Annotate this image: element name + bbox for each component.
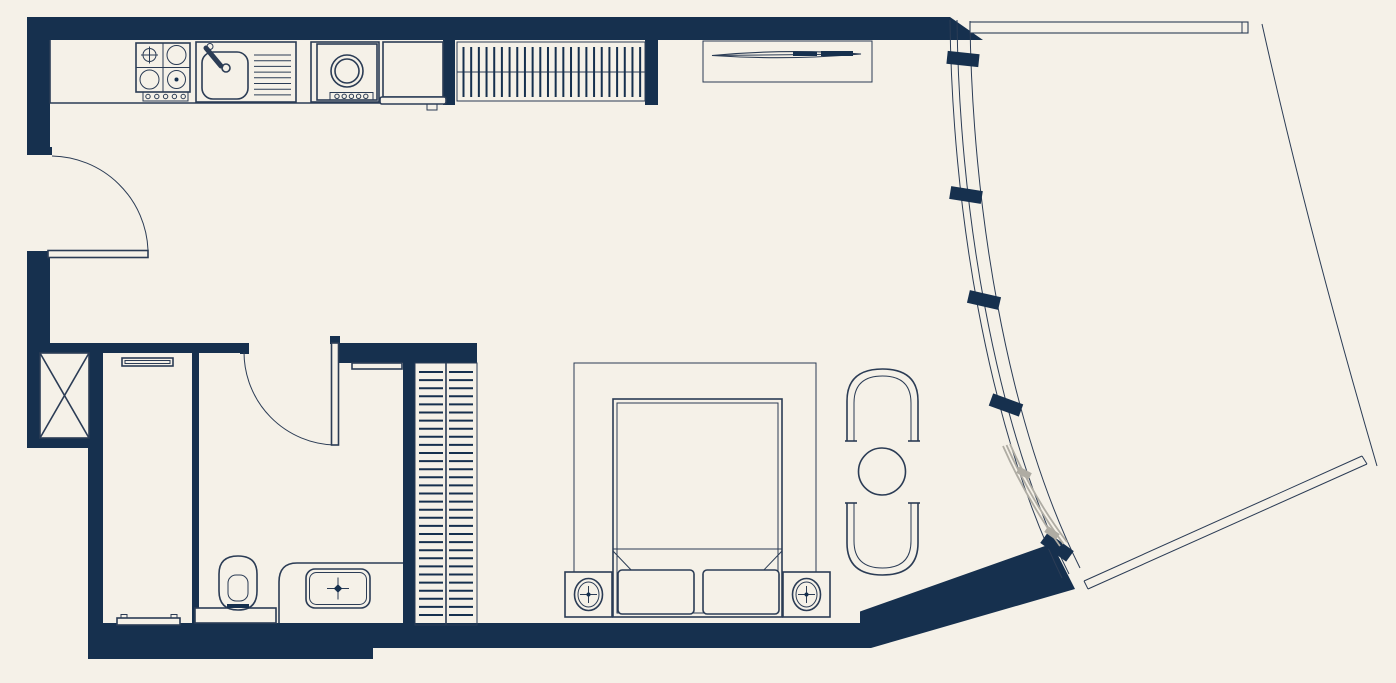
floor-plan-page (0, 0, 1396, 683)
pillow-right (703, 570, 779, 614)
hall-shelf (122, 358, 173, 366)
hall-mat (117, 618, 180, 625)
left-jog-wall (27, 438, 103, 448)
top-wall (27, 17, 983, 40)
interior-wall-horizontal (27, 343, 243, 353)
nightstand-left (565, 572, 612, 617)
pillow-left (618, 570, 694, 614)
balcony-top-railing (970, 22, 1248, 33)
hall-bathroom-partition (192, 353, 199, 623)
shaft-right-wall (89, 343, 103, 447)
bathroom-ne-wall (338, 343, 477, 363)
toilet-flush-bar (227, 604, 249, 608)
bathroom-mirror-shelf (352, 363, 402, 369)
left-wall-upper (27, 17, 50, 148)
entrance-door-leaf (48, 251, 148, 258)
utility-shaft (40, 353, 89, 438)
nightstand-right (783, 572, 830, 617)
entrance-jamb-top (27, 147, 52, 155)
floor-plan-svg (0, 0, 1396, 683)
left-wall-lower (88, 447, 103, 627)
bathroom-door-leaf (332, 343, 339, 445)
tv-screen-dark-2 (821, 51, 853, 56)
tv-screen-dark-1 (793, 52, 817, 57)
kitchen-closet-stub-left (443, 33, 455, 105)
wardrobe-left-wall (403, 363, 415, 625)
kitchen-closet-stub-right (645, 33, 658, 105)
fridge-door (380, 97, 446, 104)
toilet-bowl (219, 556, 257, 610)
